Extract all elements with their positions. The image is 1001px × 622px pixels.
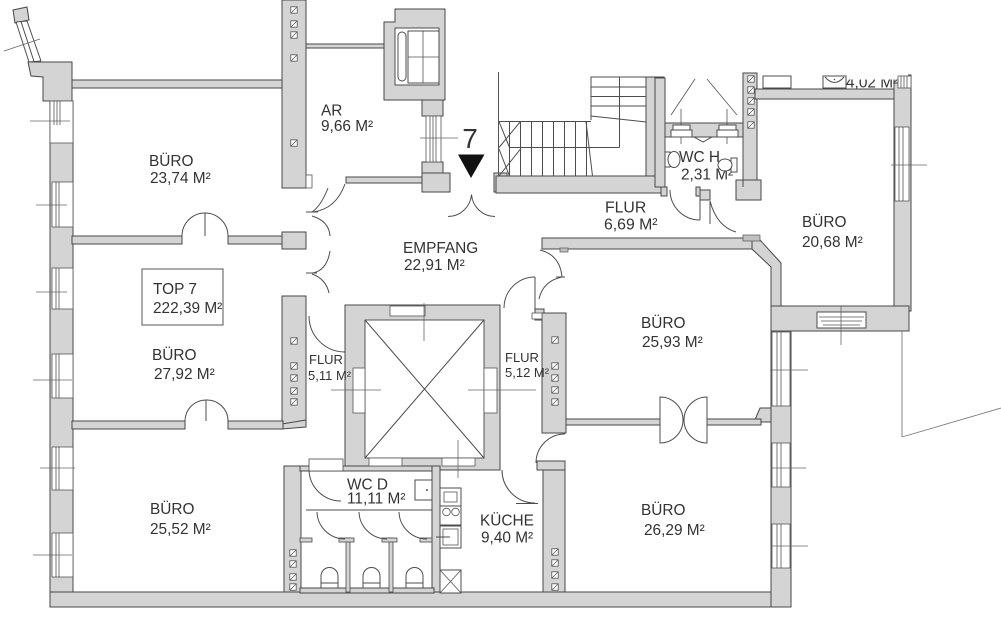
svg-text:6,69 M²: 6,69 M² — [604, 217, 658, 234]
svg-text:222,39 M²: 222,39 M² — [153, 300, 222, 317]
svg-text:FLUR: FLUR — [309, 352, 343, 367]
svg-text:BÜRO: BÜRO — [152, 346, 196, 364]
svg-text:22,91 M²: 22,91 M² — [404, 257, 465, 274]
svg-text:BÜRO: BÜRO — [150, 500, 194, 518]
svg-text:FLUR: FLUR — [505, 350, 539, 365]
svg-text:WC H: WC H — [679, 149, 720, 166]
svg-text:25,93 M²: 25,93 M² — [642, 334, 703, 351]
svg-text:KÜCHE: KÜCHE — [480, 512, 534, 530]
svg-text:20,68 M²: 20,68 M² — [802, 234, 863, 251]
svg-text:BÜRO: BÜRO — [149, 152, 193, 170]
svg-text:27,92 M²: 27,92 M² — [154, 366, 215, 383]
svg-text:9,66 M²: 9,66 M² — [321, 118, 373, 135]
svg-text:9,40 M²: 9,40 M² — [481, 530, 533, 547]
svg-text:7: 7 — [462, 123, 478, 154]
svg-text:26,29 M²: 26,29 M² — [644, 522, 705, 539]
svg-text:TOP 7: TOP 7 — [153, 281, 197, 298]
svg-text:EMPFANG: EMPFANG — [403, 240, 478, 257]
svg-text:BÜRO: BÜRO — [641, 314, 685, 332]
svg-text:AR: AR — [321, 103, 342, 120]
svg-text:23,74 M²: 23,74 M² — [150, 170, 211, 187]
svg-text:11,11 M²: 11,11 M² — [347, 491, 405, 508]
svg-text:25,52 M²: 25,52 M² — [150, 521, 211, 538]
svg-text:5,11 M²: 5,11 M² — [308, 368, 352, 383]
svg-text:FLUR: FLUR — [605, 200, 646, 217]
svg-text:BÜRO: BÜRO — [802, 213, 846, 231]
svg-text:BÜRO: BÜRO — [641, 501, 685, 519]
svg-text:5,12 M²: 5,12 M² — [505, 365, 550, 380]
